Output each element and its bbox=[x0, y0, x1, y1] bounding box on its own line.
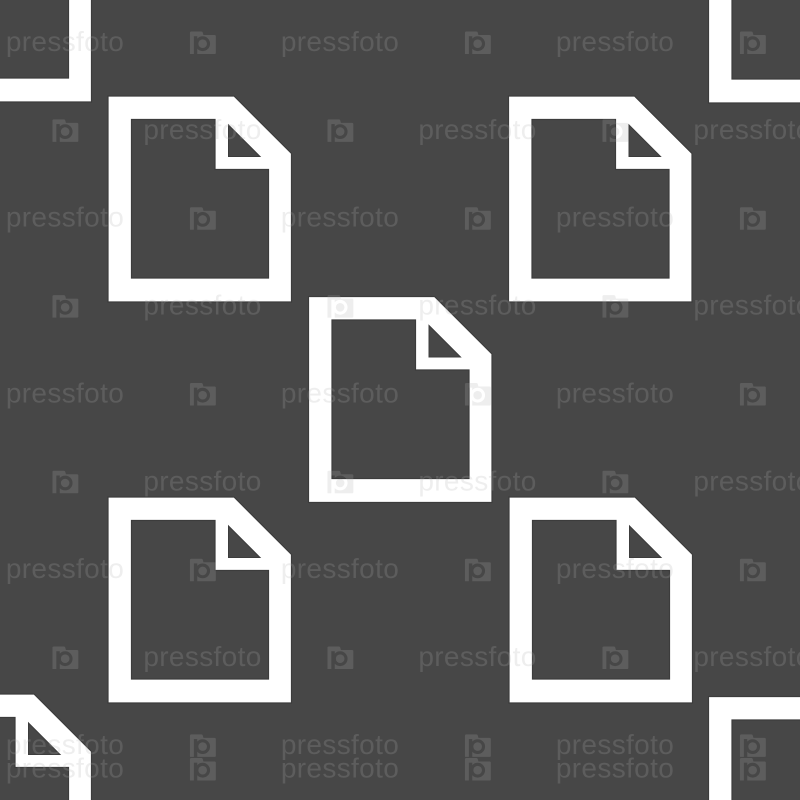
svg-text:pressfoto: pressfoto bbox=[6, 753, 124, 784]
svg-text:pressfoto: pressfoto bbox=[556, 26, 674, 57]
svg-text:pressfoto: pressfoto bbox=[6, 553, 124, 584]
svg-text:pressfoto: pressfoto bbox=[6, 26, 124, 57]
svg-text:pressfoto: pressfoto bbox=[281, 202, 399, 233]
svg-text:pressfoto: pressfoto bbox=[6, 378, 124, 409]
svg-text:pressfoto: pressfoto bbox=[143, 641, 261, 672]
svg-text:pressfoto: pressfoto bbox=[556, 753, 674, 784]
svg-text:pressfoto: pressfoto bbox=[693, 114, 800, 145]
svg-text:pressfoto: pressfoto bbox=[281, 26, 399, 57]
svg-text:pressfoto: pressfoto bbox=[418, 465, 536, 496]
svg-text:pressfoto: pressfoto bbox=[418, 114, 536, 145]
svg-text:pressfoto: pressfoto bbox=[281, 378, 399, 409]
svg-text:pressfoto: pressfoto bbox=[281, 553, 399, 584]
svg-text:pressfoto: pressfoto bbox=[693, 465, 800, 496]
svg-text:pressfoto: pressfoto bbox=[418, 290, 536, 321]
svg-text:pressfoto: pressfoto bbox=[143, 465, 261, 496]
svg-text:pressfoto: pressfoto bbox=[6, 202, 124, 233]
svg-text:pressfoto: pressfoto bbox=[693, 290, 800, 321]
svg-text:pressfoto: pressfoto bbox=[693, 641, 800, 672]
svg-text:pressfoto: pressfoto bbox=[556, 202, 674, 233]
svg-text:pressfoto: pressfoto bbox=[143, 290, 261, 321]
svg-text:pressfoto: pressfoto bbox=[143, 114, 261, 145]
svg-text:pressfoto: pressfoto bbox=[281, 753, 399, 784]
svg-text:pressfoto: pressfoto bbox=[556, 378, 674, 409]
svg-text:pressfoto: pressfoto bbox=[418, 641, 536, 672]
svg-text:pressfoto: pressfoto bbox=[556, 553, 674, 584]
